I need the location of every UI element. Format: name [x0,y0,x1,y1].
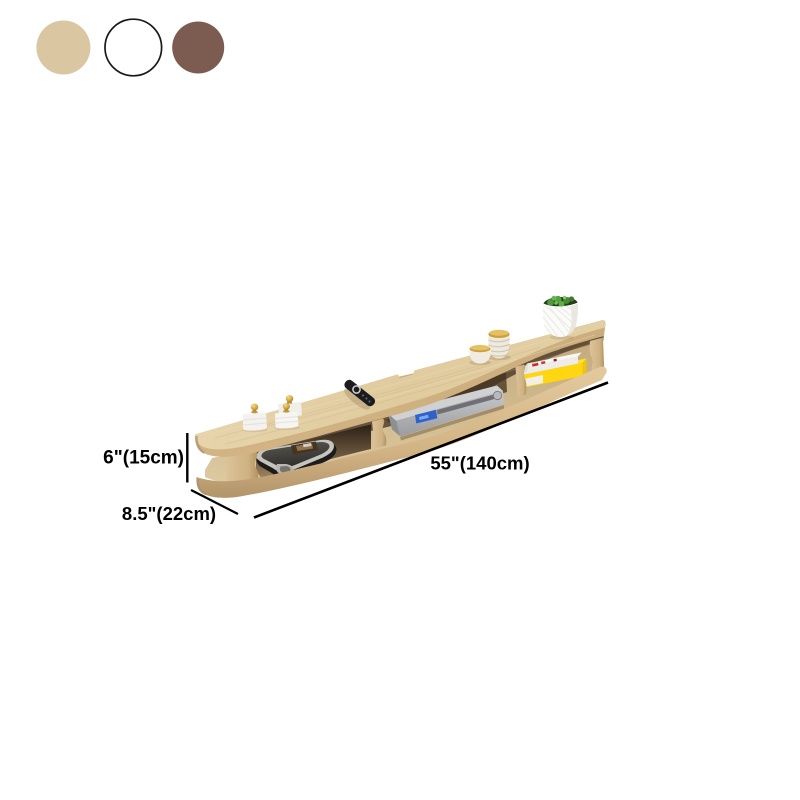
svg-text:6"(15cm): 6"(15cm) [103,448,184,469]
svg-text:8.5"(22cm): 8.5"(22cm) [122,503,216,524]
svg-text:55"(140cm): 55"(140cm) [430,452,529,473]
